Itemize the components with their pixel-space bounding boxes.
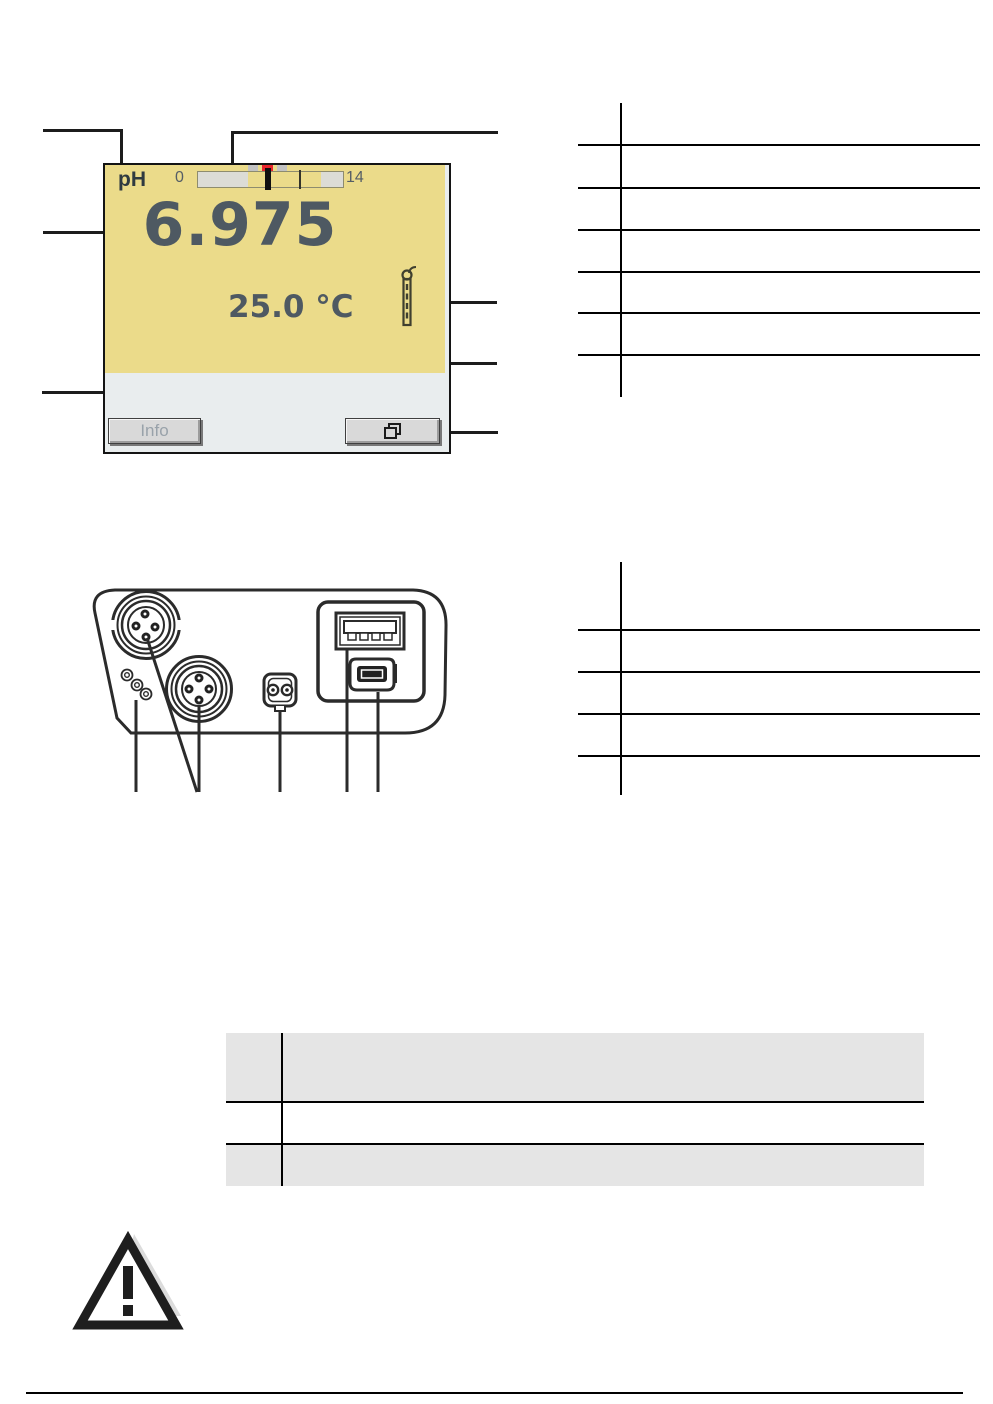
spec-table-row <box>226 1145 924 1186</box>
meter-display: pH 0 14 6.975 25.0 °C Info <box>103 163 451 454</box>
softkey-button <box>345 418 440 444</box>
electrode-icon <box>396 265 420 329</box>
ph-scale-pointer <box>265 168 271 190</box>
spec-table-row <box>226 1033 924 1101</box>
legend-table-rule <box>578 713 980 715</box>
footer-rule <box>26 1392 963 1394</box>
scale-min-label: 0 <box>175 169 184 187</box>
legend-table-rule <box>578 144 980 146</box>
window-stack-icon <box>383 422 403 440</box>
spec-table-vertical-rule <box>281 1033 283 1186</box>
measurement-screen: pH 0 14 6.975 25.0 °C <box>105 165 445 373</box>
power-socket-icon <box>264 674 296 711</box>
callout-line-mode <box>43 129 123 132</box>
connector-panel-figure <box>85 585 455 795</box>
legend-table-rule <box>578 755 980 757</box>
legend-table-rule <box>578 312 980 314</box>
ph-reading: 6.975 <box>125 195 355 255</box>
legend-table-rule <box>578 671 980 673</box>
scale-segment-left <box>198 172 248 187</box>
callout-line-scale <box>231 131 498 134</box>
legend-table-rule <box>578 271 980 273</box>
usb-a-port-icon <box>336 613 404 649</box>
usb-mini-port-icon <box>348 659 396 690</box>
scale-mark-gray-left <box>248 165 258 171</box>
spec-table <box>226 1033 924 1186</box>
legend-table-rule <box>578 229 980 231</box>
legend-table-rule <box>578 187 980 189</box>
warning-triangle-icon <box>70 1226 188 1332</box>
spec-table-row <box>226 1103 924 1143</box>
mode-label: pH <box>118 168 146 192</box>
scale-segment-right <box>321 172 343 187</box>
legend-table-vertical-rule <box>620 103 622 397</box>
temperature-reading: 25.0 °C <box>228 289 354 325</box>
legend-table-rule <box>578 354 980 356</box>
info-button-label: Info <box>140 421 168 441</box>
legend-table-rule <box>578 629 980 631</box>
info-button: Info <box>108 418 201 444</box>
manual-page: pH 0 14 6.975 25.0 °C Info <box>0 0 993 1404</box>
scale-max-label: 14 <box>346 169 364 187</box>
ph-scale-tick <box>299 170 301 189</box>
legend-table-vertical-rule <box>620 562 622 795</box>
scale-mark-gray-right <box>277 165 287 171</box>
